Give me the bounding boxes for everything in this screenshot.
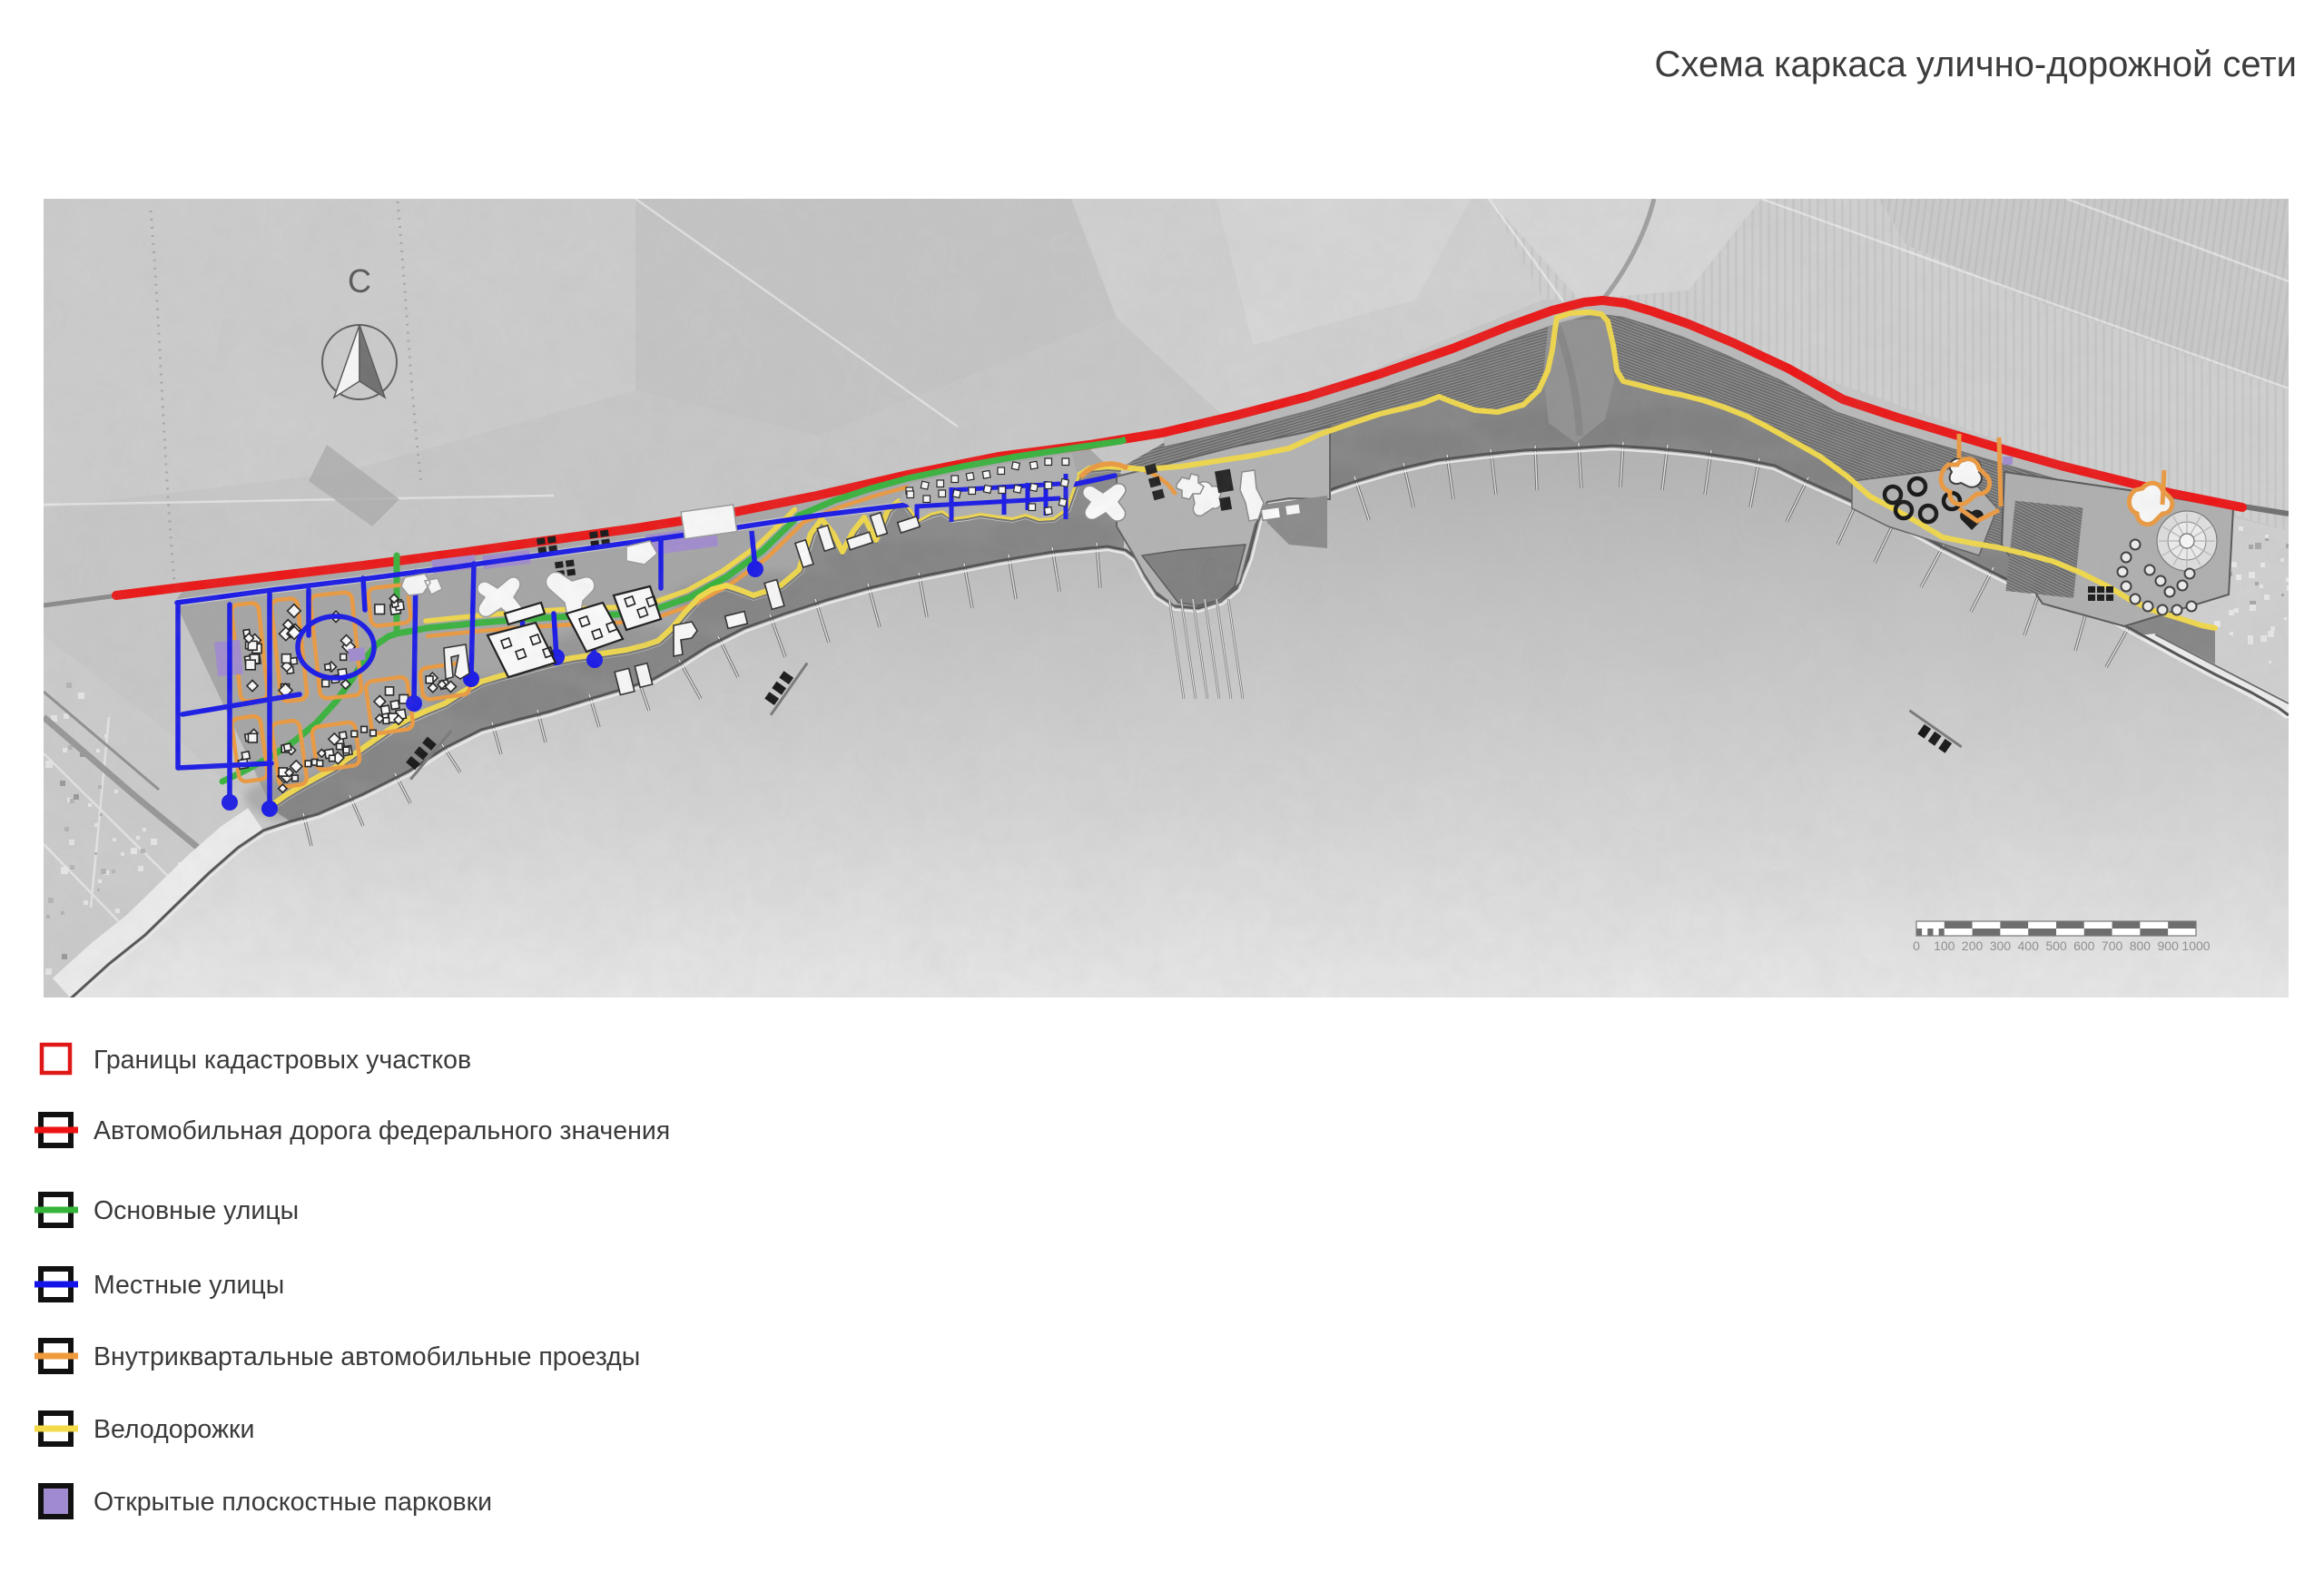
svg-text:1000: 1000 [2181,938,2210,953]
svg-text:600: 600 [2073,938,2095,953]
svg-text:900: 900 [2158,938,2180,953]
svg-text:Велодорожки: Велодорожки [94,1415,254,1444]
svg-text:Границы кадастровых участков: Границы кадастровых участков [94,1046,471,1075]
svg-text:100: 100 [1934,938,1955,953]
svg-text:Местные улицы: Местные улицы [94,1271,284,1300]
svg-text:200: 200 [1962,938,1984,953]
svg-text:500: 500 [2045,938,2067,953]
svg-text:700: 700 [2102,938,2123,953]
svg-text:Схема каркаса улично-дорожной: Схема каркаса улично-дорожной сети [1655,44,2297,84]
svg-text:Внутриквартальные автомобильны: Внутриквартальные автомобильные проезды [94,1342,640,1371]
svg-text:Автомобильная дорога федеральн: Автомобильная дорога федерального значен… [94,1116,670,1145]
svg-text:Открытые плоскостные парковки: Открытые плоскостные парковки [94,1488,492,1517]
svg-text:0: 0 [1913,938,1920,953]
svg-text:800: 800 [2130,938,2152,953]
svg-text:400: 400 [2018,938,2040,953]
svg-text:Основные улицы: Основные улицы [94,1196,299,1225]
svg-text:300: 300 [1990,938,2012,953]
